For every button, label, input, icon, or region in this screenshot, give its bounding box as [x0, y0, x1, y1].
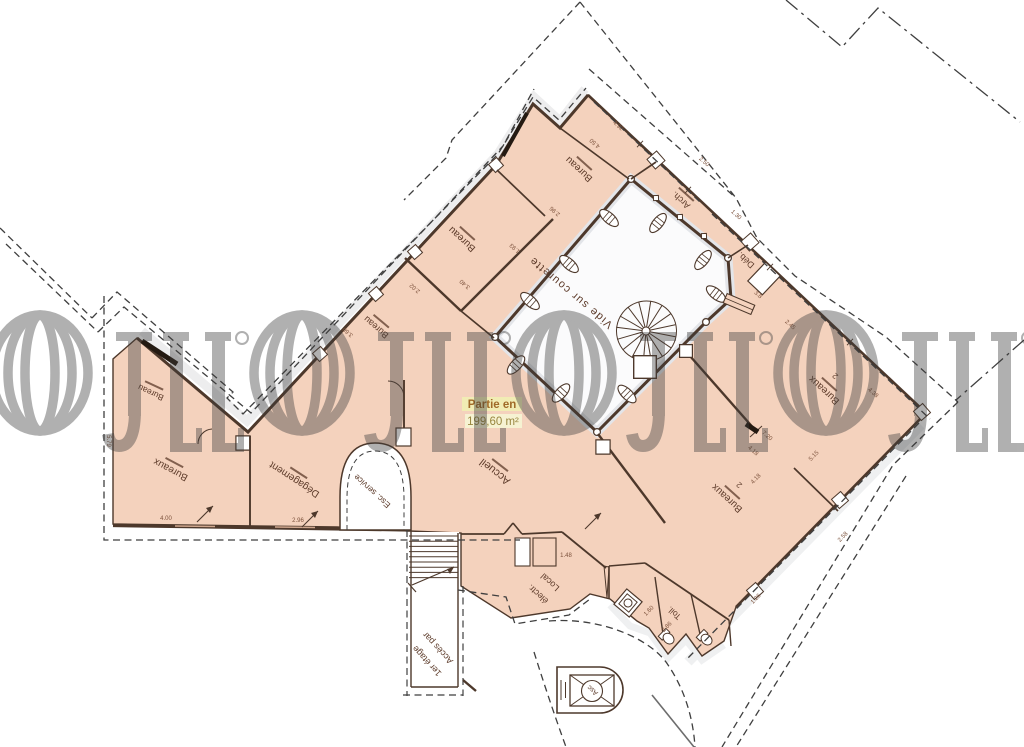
- svg-text:2.96: 2.96: [292, 518, 304, 524]
- svg-text:4.00: 4.00: [160, 516, 172, 522]
- svg-text:1.48: 1.48: [560, 553, 572, 559]
